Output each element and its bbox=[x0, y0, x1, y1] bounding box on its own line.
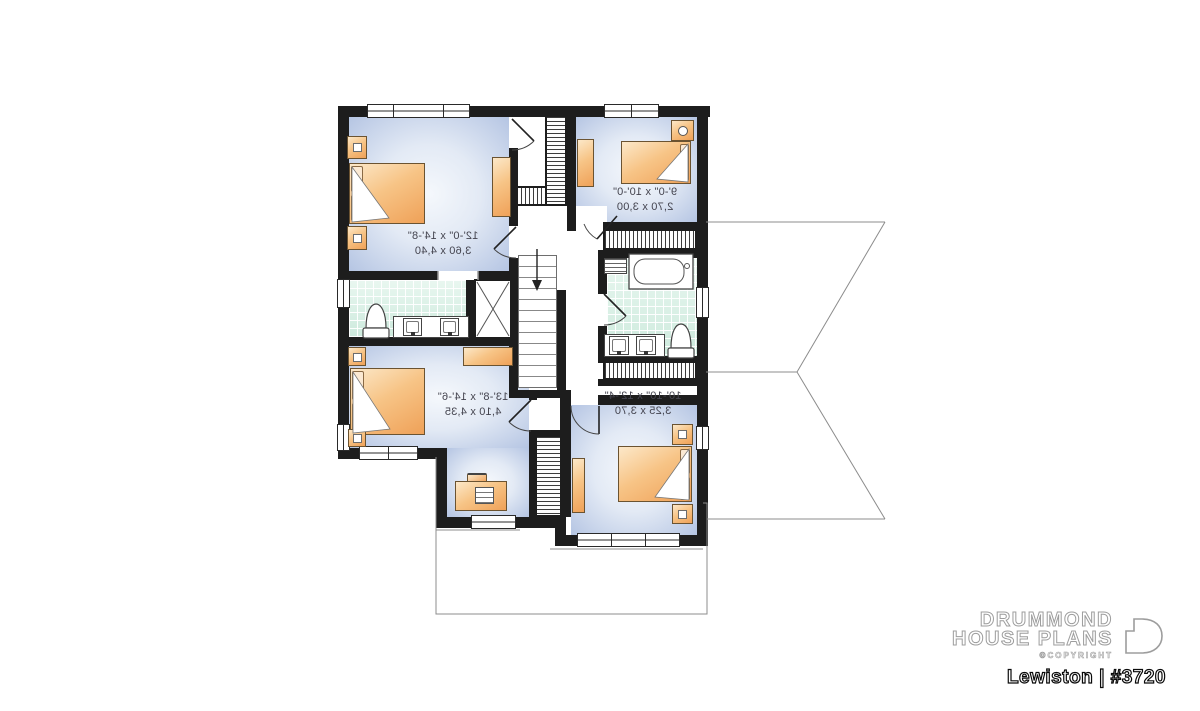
shower bbox=[474, 279, 512, 339]
sink bbox=[440, 318, 459, 336]
nightstand bbox=[347, 136, 367, 159]
watermark-footer: DRUMMOND HOUSE PLANS ©COPYRIGHT Lewiston… bbox=[952, 611, 1166, 689]
nightstand bbox=[348, 347, 366, 366]
wall-step bbox=[436, 448, 447, 528]
window-top-left-bedroom bbox=[367, 104, 470, 118]
closet-top-right bbox=[603, 229, 697, 250]
sink bbox=[609, 336, 629, 355]
window-desk-area bbox=[471, 515, 516, 529]
closet-bottom-right bbox=[603, 361, 697, 380]
pillow bbox=[680, 449, 690, 474]
pillow bbox=[351, 166, 363, 192]
window-right-bathroom bbox=[696, 287, 709, 318]
wall-closetD-top bbox=[529, 430, 571, 437]
tr-bedroom-door-opening bbox=[576, 222, 603, 231]
room-label-bedroom-top-left: 12'-0" x 14'-8" 3,60 x 4,40 bbox=[381, 229, 505, 258]
plan-name-label: Lewiston | #3720 bbox=[952, 667, 1166, 689]
drummond-logo-icon bbox=[1120, 615, 1166, 657]
desk-drawers bbox=[475, 487, 494, 504]
pillow bbox=[680, 144, 689, 181]
window-bl-bedroom-bottom bbox=[359, 446, 418, 460]
dresser-bottom-left-room bbox=[463, 347, 513, 366]
dim-metric: 2,70 x 3,00 bbox=[583, 200, 707, 215]
pillow bbox=[680, 477, 690, 500]
window-br-bedroom-bottom bbox=[577, 533, 680, 547]
window-right-br-bedroom bbox=[696, 426, 709, 450]
wall-closetC-bottom bbox=[598, 379, 697, 386]
room-label-bedroom-bottom-left: 13'-8" x 14'-6" 4,10 x 4,35 bbox=[411, 390, 535, 419]
dim-metric: 3,60 x 4,40 bbox=[381, 244, 505, 259]
floor-plan-canvas: 12'-0" x 14'-8" 3,60 x 4,40 9'-0" x 10'-… bbox=[0, 0, 1200, 711]
dim-imperial: 13'-8" x 14'-6" bbox=[411, 390, 535, 405]
pillow bbox=[352, 371, 364, 400]
sink bbox=[403, 318, 422, 336]
door-leaf bbox=[512, 119, 534, 141]
nightstand bbox=[348, 429, 366, 447]
window-left-bathroom bbox=[337, 279, 350, 308]
nightstand bbox=[672, 424, 693, 445]
dim-imperial: 10'-10" x 12'-4" bbox=[581, 389, 705, 404]
walkin-closet-vertical bbox=[545, 115, 567, 206]
wall-tr-left bbox=[567, 106, 576, 231]
wall-bathR-bottom bbox=[598, 356, 697, 363]
wall-bl-right-lower bbox=[529, 430, 537, 517]
closet-bottom-left bbox=[533, 435, 562, 517]
wall-tr-bottom bbox=[603, 222, 708, 231]
brand-line2: HOUSE PLANS bbox=[952, 630, 1113, 649]
window-top-right-bedroom bbox=[604, 104, 659, 118]
wall-stair-right bbox=[557, 290, 566, 398]
room-label-bedroom-top-right: 9'-0" x 10'-0" 2,70 x 3,00 bbox=[583, 185, 707, 214]
dim-metric: 3,25 x 3,70 bbox=[581, 404, 705, 419]
staircase bbox=[518, 255, 557, 388]
dresser-bottom-right-room bbox=[572, 458, 585, 513]
brand-row: DRUMMOND HOUSE PLANS ©COPYRIGHT bbox=[952, 611, 1166, 660]
dim-imperial: 9'-0" x 10'-0" bbox=[583, 185, 707, 200]
wall-closetB-bottom bbox=[598, 250, 708, 258]
dresser-top-left-room bbox=[492, 157, 511, 217]
dim-imperial: 12'-0" x 14'-8" bbox=[381, 229, 505, 244]
dim-metric: 4,10 x 4,35 bbox=[411, 405, 535, 420]
pillow bbox=[351, 195, 363, 221]
linen-shelf bbox=[604, 258, 627, 274]
brand-text: DRUMMOND HOUSE PLANS ©COPYRIGHT bbox=[952, 611, 1113, 660]
sink bbox=[636, 336, 656, 355]
copyright-label: ©COPYRIGHT bbox=[952, 651, 1113, 660]
walkin-closet-horizontal bbox=[515, 186, 547, 206]
wall-br-left bbox=[560, 390, 571, 517]
nightstand bbox=[347, 226, 367, 250]
bathL-entry-opening bbox=[438, 271, 478, 280]
wall-exterior-right bbox=[697, 106, 708, 546]
pillow bbox=[352, 403, 364, 431]
dresser-top-right-room bbox=[577, 139, 594, 187]
nightstand-with-lamp bbox=[671, 120, 694, 141]
room-label-bedroom-bottom-right: 10'-10" x 12'-4" 3,25 x 3,70 bbox=[581, 389, 705, 418]
nightstand bbox=[672, 504, 693, 524]
